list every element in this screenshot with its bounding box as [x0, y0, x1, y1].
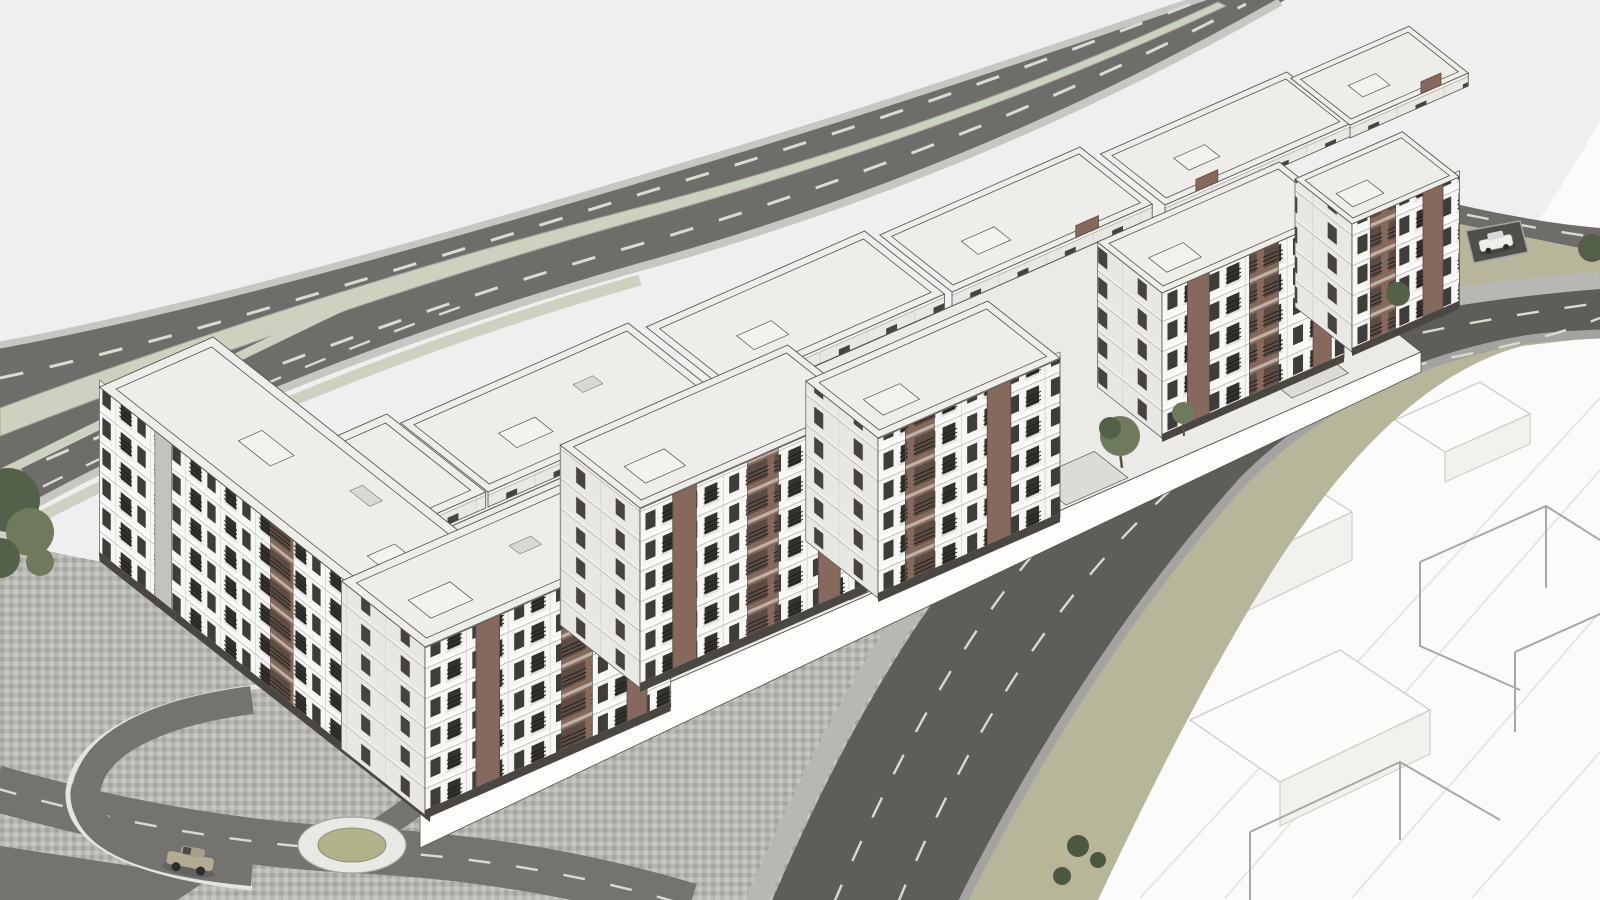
shrub [1067, 835, 1089, 857]
render-viewport [0, 0, 1600, 900]
tree [1386, 282, 1410, 306]
architectural-render [0, 0, 1600, 900]
shrub [1053, 867, 1071, 885]
roundabout-island [318, 828, 386, 862]
shrub [1090, 852, 1106, 868]
